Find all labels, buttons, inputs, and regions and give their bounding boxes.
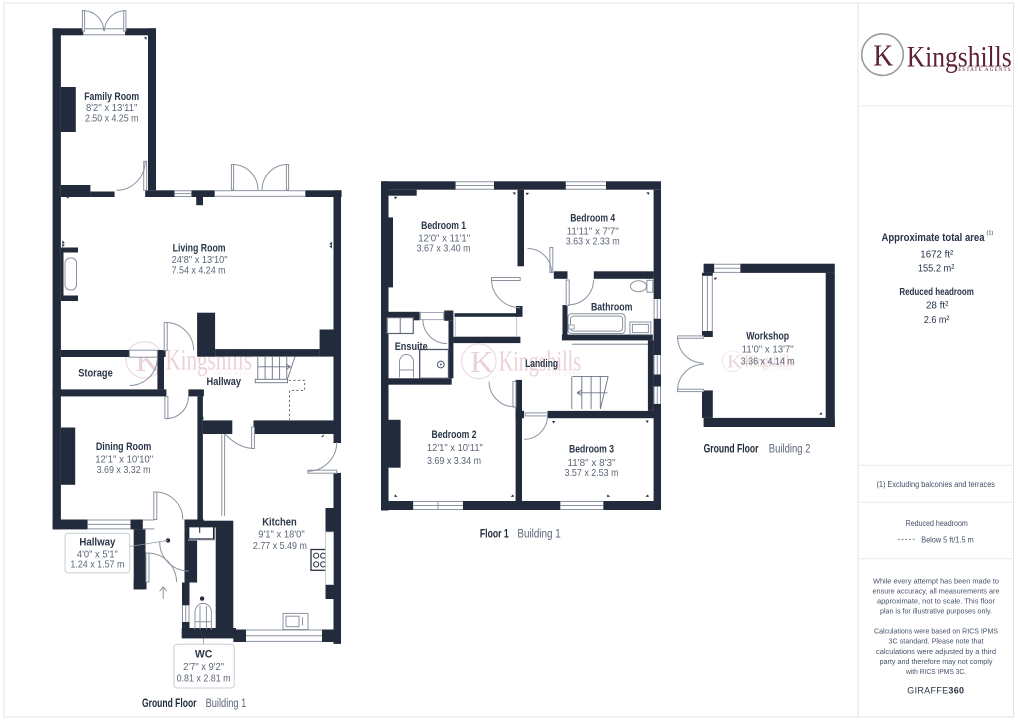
svg-text:K: K xyxy=(135,342,160,378)
svg-text:calculations were adjusted by: calculations were adjusted by a third xyxy=(876,647,996,656)
svg-text:with RICS IPMS 3C.: with RICS IPMS 3C. xyxy=(905,667,966,676)
svg-text:0.81 x 2.81 m: 0.81 x 2.81 m xyxy=(177,674,231,685)
svg-text:11'0" x 13'7": 11'0" x 13'7" xyxy=(742,345,794,356)
svg-text:Reduced headroom: Reduced headroom xyxy=(906,518,968,528)
svg-text:(1) Excluding balconies and te: (1) Excluding balconies and terraces xyxy=(876,480,995,489)
svg-text:approximate, not to scale. Thi: approximate, not to scale. This floor xyxy=(877,597,995,606)
svg-text:9'1" x 18'0": 9'1" x 18'0" xyxy=(258,530,305,541)
svg-text:plan is for illustrative purpo: plan is for illustrative purposes only. xyxy=(880,607,992,616)
svg-text:3.69 x 3.32 m: 3.69 x 3.32 m xyxy=(97,465,151,476)
svg-text:Building 1: Building 1 xyxy=(206,698,247,710)
svg-text:Building 1: Building 1 xyxy=(517,529,560,541)
svg-text:While every attempt has been m: While every attempt has been made to xyxy=(873,576,999,585)
svg-text:Bedroom 4: Bedroom 4 xyxy=(570,213,616,225)
svg-text:Ground Floor: Ground Floor xyxy=(142,698,197,710)
svg-text:K: K xyxy=(727,351,741,371)
svg-text:K: K xyxy=(873,37,894,72)
svg-text:8'2" x 13'11": 8'2" x 13'11" xyxy=(86,103,138,114)
svg-text:2'7" x 9'2": 2'7" x 9'2" xyxy=(183,662,224,673)
svg-text:3C standard. Please note that: 3C standard. Please note that xyxy=(889,637,985,646)
svg-text:Workshop: Workshop xyxy=(746,331,789,343)
svg-text:3.67 x 3.40 m: 3.67 x 3.40 m xyxy=(417,244,471,255)
svg-text:28 ft²: 28 ft² xyxy=(926,300,949,312)
svg-text:12'0" x 11'1": 12'0" x 11'1" xyxy=(418,233,470,244)
svg-text:Below 5 ft/1.5 m: Below 5 ft/1.5 m xyxy=(921,535,974,544)
svg-text:Bedroom 2: Bedroom 2 xyxy=(432,429,477,441)
svg-text:Ground Floor: Ground Floor xyxy=(704,444,759,456)
svg-text:Bedroom 3: Bedroom 3 xyxy=(569,444,614,456)
svg-text:Floor 1: Floor 1 xyxy=(480,529,509,541)
svg-text:Family Room: Family Room xyxy=(84,91,139,103)
svg-text:Living Room: Living Room xyxy=(173,243,226,255)
svg-text:1672 ft²: 1672 ft² xyxy=(920,249,953,261)
svg-text:Ensuite: Ensuite xyxy=(395,341,428,353)
svg-text:3.69 x 3.34 m: 3.69 x 3.34 m xyxy=(427,456,481,467)
svg-text:1.24 x 1.57 m: 1.24 x 1.57 m xyxy=(70,559,124,570)
svg-text:3.63 x 2.33 m: 3.63 x 2.33 m xyxy=(566,237,620,248)
svg-text:Hallway: Hallway xyxy=(79,536,116,548)
svg-text:K: K xyxy=(470,345,494,379)
svg-text:Bedroom 1: Bedroom 1 xyxy=(421,220,466,232)
svg-text:Reduced headroom: Reduced headroom xyxy=(899,287,974,298)
svg-text:3.57 x 2.53 m: 3.57 x 2.53 m xyxy=(565,468,619,479)
svg-text:Storage: Storage xyxy=(78,368,113,380)
svg-text:2.50 x 4.25 m: 2.50 x 4.25 m xyxy=(85,114,139,125)
svg-text:Calculations were based on RIC: Calculations were based on RICS IPMS xyxy=(874,627,998,636)
svg-text:WC: WC xyxy=(195,649,213,661)
svg-text:155.2 m²: 155.2 m² xyxy=(918,263,955,275)
svg-text:Hallway: Hallway xyxy=(207,376,242,388)
svg-text:GIRAFFE360: GIRAFFE360 xyxy=(907,686,964,696)
svg-text:Approximate total area: Approximate total area xyxy=(882,232,986,244)
svg-text:ESTATE AGENTS: ESTATE AGENTS xyxy=(958,67,1012,73)
svg-text:12'1" x 10'11": 12'1" x 10'11" xyxy=(427,443,483,454)
svg-text:party and therefore may not co: party and therefore may not comply xyxy=(880,657,993,666)
svg-text:7.54 x 4.24 m: 7.54 x 4.24 m xyxy=(172,266,226,277)
svg-text:2.77 x 5.49 m: 2.77 x 5.49 m xyxy=(253,541,307,552)
svg-text:Building 2: Building 2 xyxy=(769,444,811,456)
svg-text:Landing: Landing xyxy=(525,358,558,370)
svg-text:(1): (1) xyxy=(987,231,994,237)
svg-text:12'1" x 10'10": 12'1" x 10'10" xyxy=(95,454,153,465)
svg-text:Dining Room: Dining Room xyxy=(96,441,152,453)
svg-text:ensure accuracy, all measureme: ensure accuracy, all measurements are xyxy=(873,586,1000,595)
svg-text:24'8" x 13'10": 24'8" x 13'10" xyxy=(172,255,228,266)
svg-text:2.6 m²: 2.6 m² xyxy=(924,314,950,326)
svg-text:Kitchen: Kitchen xyxy=(262,517,297,529)
svg-text:Bathroom: Bathroom xyxy=(591,302,633,314)
svg-text:3.36 x 4.14 m: 3.36 x 4.14 m xyxy=(741,356,795,367)
